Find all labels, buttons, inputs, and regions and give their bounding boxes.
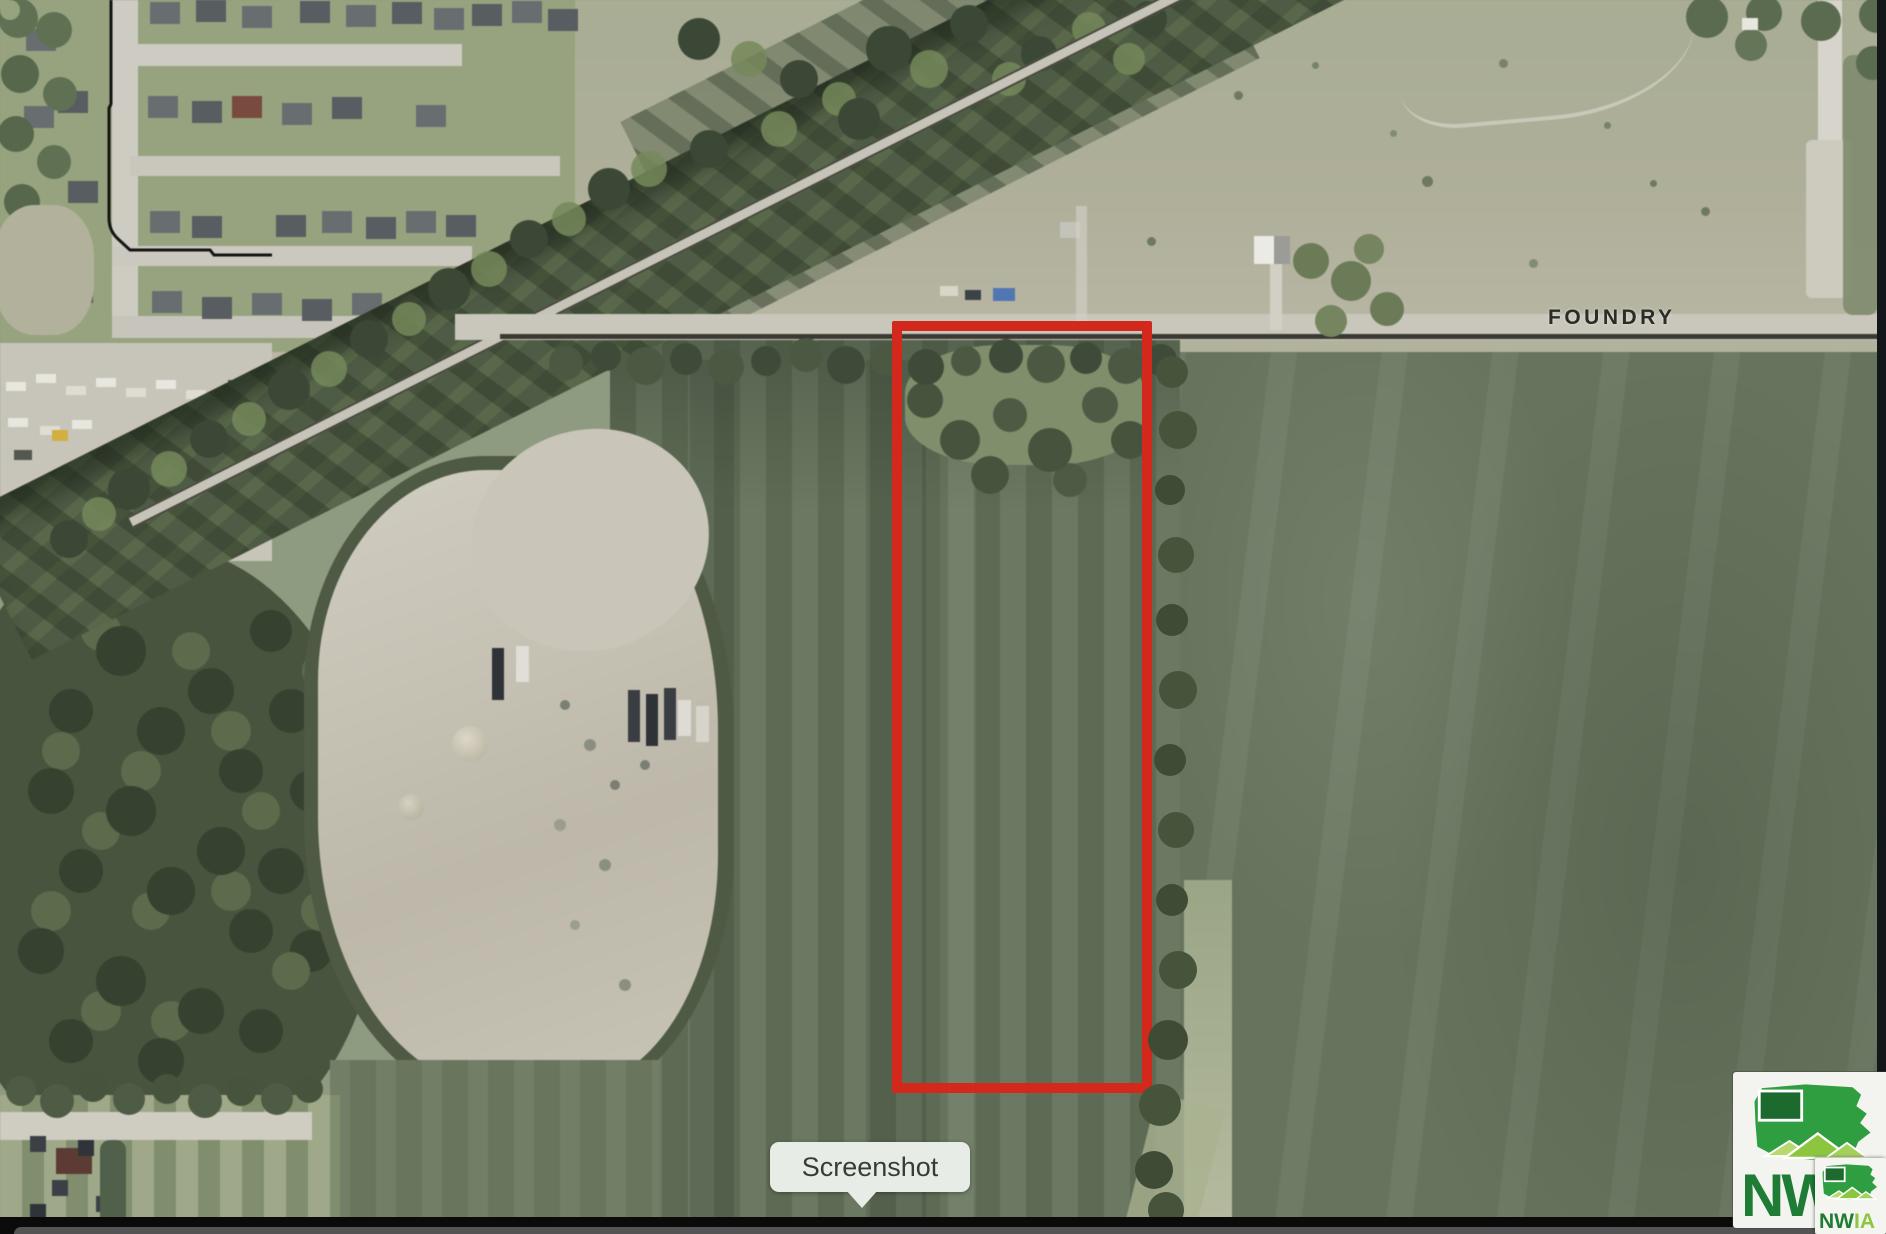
pit-tank: [398, 794, 424, 820]
nwia-brand-ia: IA: [1854, 1210, 1875, 1233]
top-right-shed: [1742, 18, 1758, 30]
parcel-outline: [892, 321, 1152, 1093]
screenshot-callout[interactable]: Screenshot: [770, 1142, 970, 1192]
image-edge-strip: [1877, 0, 1886, 1234]
screenshot-callout-label: Screenshot: [802, 1152, 939, 1183]
bottom-panel-edge: [14, 1227, 1886, 1234]
bottom-left-road: [0, 1112, 312, 1140]
dark-vehicle: [965, 290, 981, 300]
road-name-label: FOUNDRY: [1548, 306, 1676, 330]
nwia-watermark-small: NWIA: [1815, 1158, 1886, 1234]
red-barn: [56, 1148, 92, 1174]
nwia-brand-nw: NW: [1819, 1210, 1854, 1233]
farm-track: [1076, 206, 1087, 324]
blue-vehicle: [993, 288, 1015, 301]
light-vehicle: [940, 286, 958, 296]
yellow-loader: [52, 430, 68, 441]
map-canvas[interactable]: FOUNDRY Screenshot NW NWIA: [0, 0, 1886, 1234]
field-below-pit: [330, 1060, 660, 1234]
tree-line-over-parcel: [0, 0, 20, 20]
farm-driveway: [1270, 264, 1282, 330]
pit-tank: [452, 726, 488, 762]
iowa-state-icon: [1747, 1080, 1879, 1168]
iowa-state-icon: [1819, 1162, 1881, 1204]
foundry-road-edge: [500, 334, 1886, 339]
nwia-brand-text-small: NWIA: [1819, 1210, 1875, 1234]
boundary-line: [90, 0, 290, 280]
top-right-green-strip: [1843, 55, 1878, 315]
top-right-road: [1818, 0, 1842, 150]
tan-patch-left: [0, 205, 94, 335]
screenshot-callout-tail: [846, 1190, 878, 1208]
farm-house: [1254, 236, 1290, 264]
